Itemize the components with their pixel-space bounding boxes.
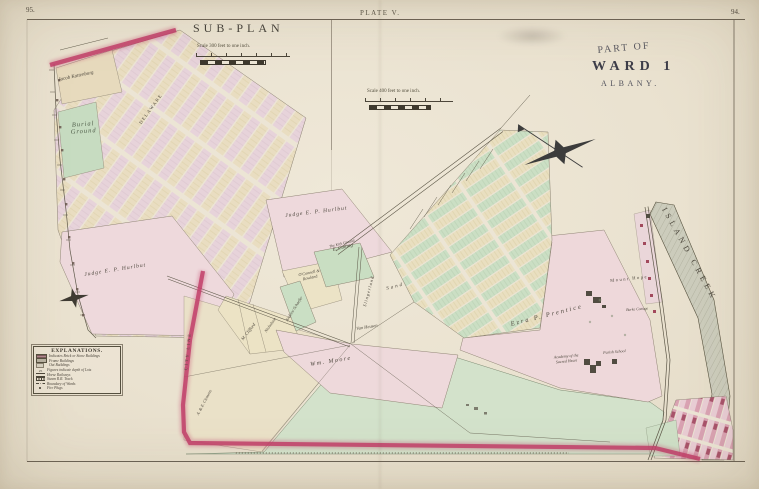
main-title-albany: ALBANY. xyxy=(601,79,660,88)
legend-item-label: Steam R.R. Track xyxy=(47,377,73,381)
scale-bar-band xyxy=(200,60,266,65)
legend-item-label: Out Buildings xyxy=(49,363,70,367)
legend-item-label: Figures indicate depth of Lots xyxy=(47,368,91,372)
lot-figures-icon: 25 xyxy=(36,369,45,372)
steam-railroad-icon xyxy=(36,377,45,381)
horse-railway-icon xyxy=(36,373,45,377)
main-scale-text: Scale 400 feet to one inch. xyxy=(367,89,420,95)
subplan-title: SUB-PLAN xyxy=(193,22,284,36)
scale-bar-ticks xyxy=(196,53,290,57)
legend-item-label: Frame Buildings xyxy=(49,359,74,363)
legend-item-label: Horse Railways xyxy=(47,373,70,377)
page-number-left: 95. xyxy=(26,6,35,14)
main-scale-bar xyxy=(365,98,453,110)
atlas-plate-page: 95. 94. PLATE V. SUB-PLAN Scale 300 feet… xyxy=(0,0,759,489)
legend-item-label: Fire Plugs xyxy=(47,386,63,390)
page-number-right: 94. xyxy=(731,8,740,16)
scale-bar-ticks xyxy=(365,98,453,102)
page-fold-crease xyxy=(378,0,382,489)
main-title-ward: WARD 1 xyxy=(592,59,675,75)
scale-bar-band xyxy=(369,105,431,110)
ward-boundary-icon xyxy=(36,383,45,384)
imprint-text-smudge xyxy=(236,452,568,454)
legend-item: Fire Plugs xyxy=(36,386,118,391)
outbuilding-swatch-icon xyxy=(36,363,44,368)
subplan-scale-text: Scale 300 feet to one inch. xyxy=(197,44,250,50)
subplan-scale-bar xyxy=(196,53,290,65)
ink-ghost-smudge xyxy=(497,26,567,46)
legend-box: EXPLANATIONS. Indicates Brick or Stone B… xyxy=(33,346,121,394)
fire-plug-icon xyxy=(36,387,45,390)
legend-item-label: Boundary of Wards xyxy=(47,382,75,386)
legend-item-label: Indicates Brick or Stone Buildings xyxy=(49,354,100,358)
label-burial-ground: Burial Ground xyxy=(68,120,99,137)
